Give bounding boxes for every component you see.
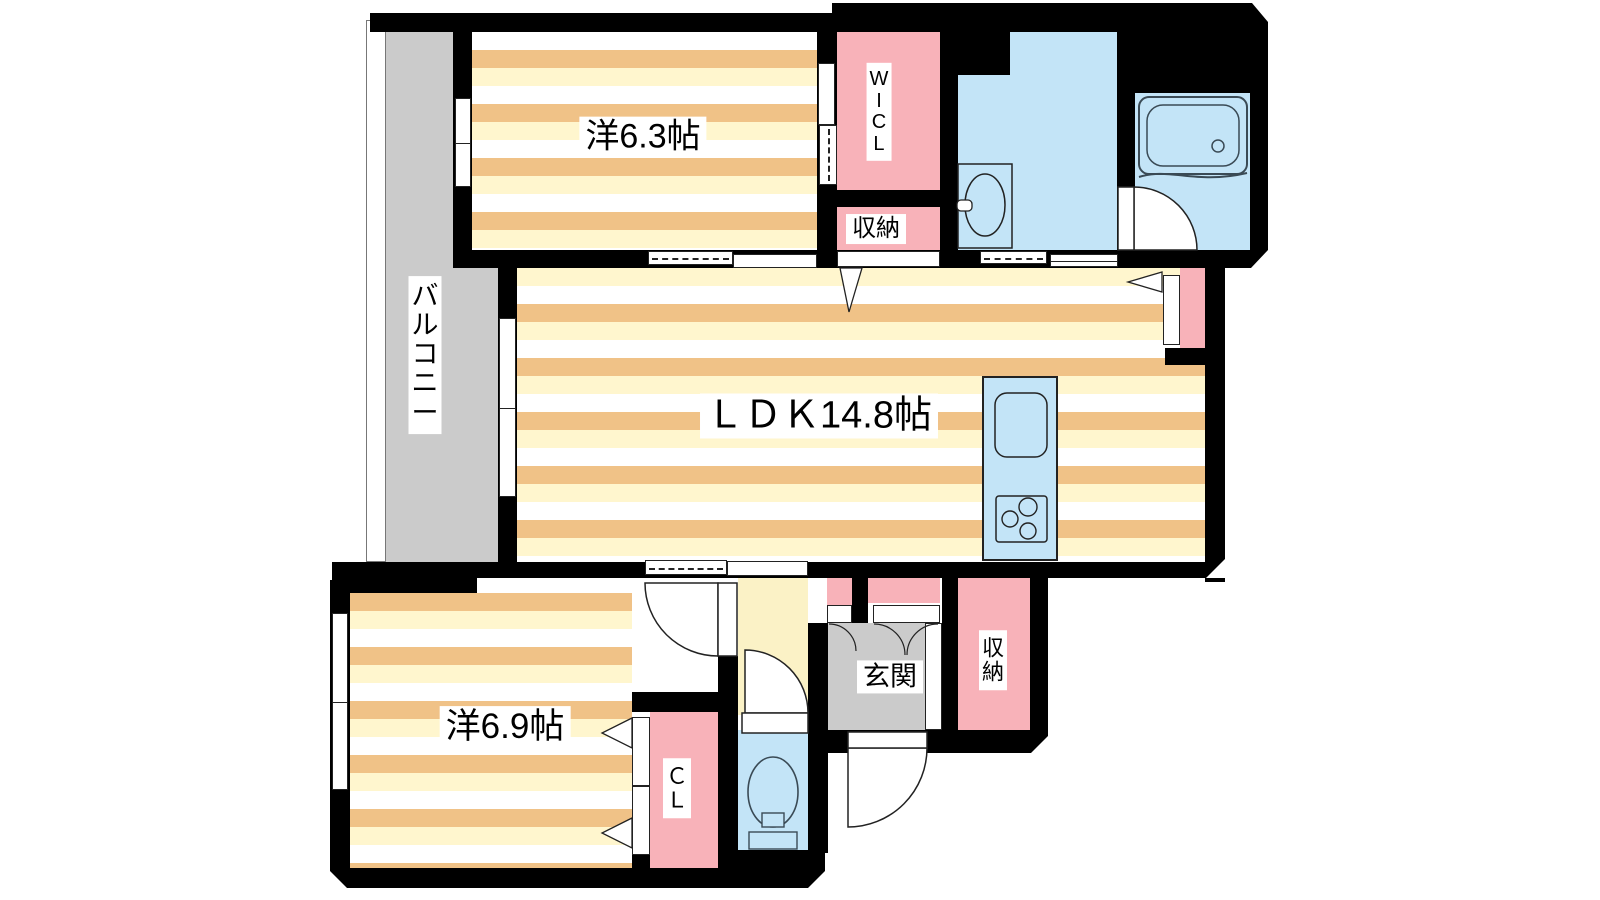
cl-char: Ｌ — [666, 788, 688, 812]
shoe-cabinet — [827, 578, 852, 605]
cl-char: Ｃ — [666, 764, 688, 788]
ldk-corner-closet-door — [1163, 275, 1180, 345]
bedroom1-balcony-window — [455, 98, 471, 187]
cl-label: Ｃ Ｌ — [663, 758, 691, 818]
balcony-floor — [386, 268, 498, 562]
bathroom-floor — [1135, 93, 1250, 250]
wall — [1250, 3, 1268, 268]
genkan-door-leaf — [925, 623, 942, 730]
wall — [1205, 268, 1225, 582]
storage-bottom-char: 収 — [982, 636, 1004, 660]
hallway-floor — [738, 575, 808, 715]
bedroom2-label: 洋6.9帖 — [440, 706, 571, 748]
shoe-cabinet — [868, 578, 940, 603]
wall — [330, 868, 740, 888]
toilet-room-floor — [738, 730, 808, 852]
ldk-label: ＬＤＫ14.8帖 — [700, 393, 938, 438]
wall — [808, 730, 1048, 753]
balcony-char: コ — [412, 340, 439, 369]
wall — [958, 32, 1010, 75]
shoe-cabinet-door — [873, 605, 940, 623]
balcony-railing — [366, 20, 386, 562]
balcony-char: ニ — [412, 370, 439, 399]
bedroom2-door-leaf — [718, 583, 737, 656]
bedroom2-door-swing — [645, 583, 718, 656]
washroom-floor — [958, 75, 1117, 252]
storage-bottom-label: 収 納 — [979, 630, 1007, 690]
balcony-char: バ — [412, 282, 439, 311]
ldk-hall-slider — [645, 560, 727, 575]
balcony-char: ル — [412, 311, 439, 340]
wall — [1117, 93, 1135, 252]
wall — [942, 578, 958, 730]
wall — [837, 190, 940, 207]
wall — [1030, 562, 1048, 753]
balcony-floor — [386, 32, 453, 268]
wall — [832, 3, 1268, 32]
floor-plan: 洋6.3帖 W I C L 収納 ＬＤＫ14.8帖 バ ル コ ニ ー 洋6.9… — [0, 0, 1600, 900]
bedroom1-label: 洋6.3帖 — [579, 117, 706, 158]
wall — [632, 855, 650, 870]
wicl-sliding-door — [818, 63, 835, 125]
cl-folding-door — [632, 717, 650, 786]
wall — [940, 3, 958, 268]
wall — [852, 578, 868, 623]
bedroom1-ldk-slider — [733, 254, 817, 268]
wall — [1165, 348, 1205, 365]
wall — [370, 13, 832, 32]
storage-top-label: 収納 — [846, 214, 906, 244]
shoe-cabinet-door — [827, 605, 852, 623]
balcony-char: ー — [412, 399, 439, 428]
wicl-sliding-door — [819, 125, 837, 185]
wicl-char: L — [873, 134, 884, 156]
storage-bottom-char: 納 — [982, 660, 1004, 684]
washroom-ldk-slider — [1050, 254, 1118, 267]
wall — [332, 578, 477, 593]
wicl-char: C — [872, 112, 886, 134]
storage-top-door — [837, 251, 940, 267]
entry-door-swing — [848, 748, 927, 827]
wicl-char: I — [876, 90, 882, 112]
ldk-corner-closet — [1180, 268, 1205, 348]
washroom-ldk-slider — [980, 251, 1047, 264]
ldk-balcony-window — [499, 318, 516, 497]
wall — [718, 656, 738, 870]
balcony-label: バ ル コ ニ ー — [409, 276, 442, 434]
wall — [1117, 32, 1250, 93]
wicl-char: W — [870, 69, 889, 91]
genkan-label: 玄関 — [857, 660, 923, 693]
cl-folding-door — [632, 786, 650, 855]
wicl-label: W I C L — [867, 63, 892, 161]
ldk-hall-slider — [727, 561, 808, 576]
bedroom1-ldk-slider — [648, 251, 733, 265]
bedroom2-window — [332, 613, 348, 790]
